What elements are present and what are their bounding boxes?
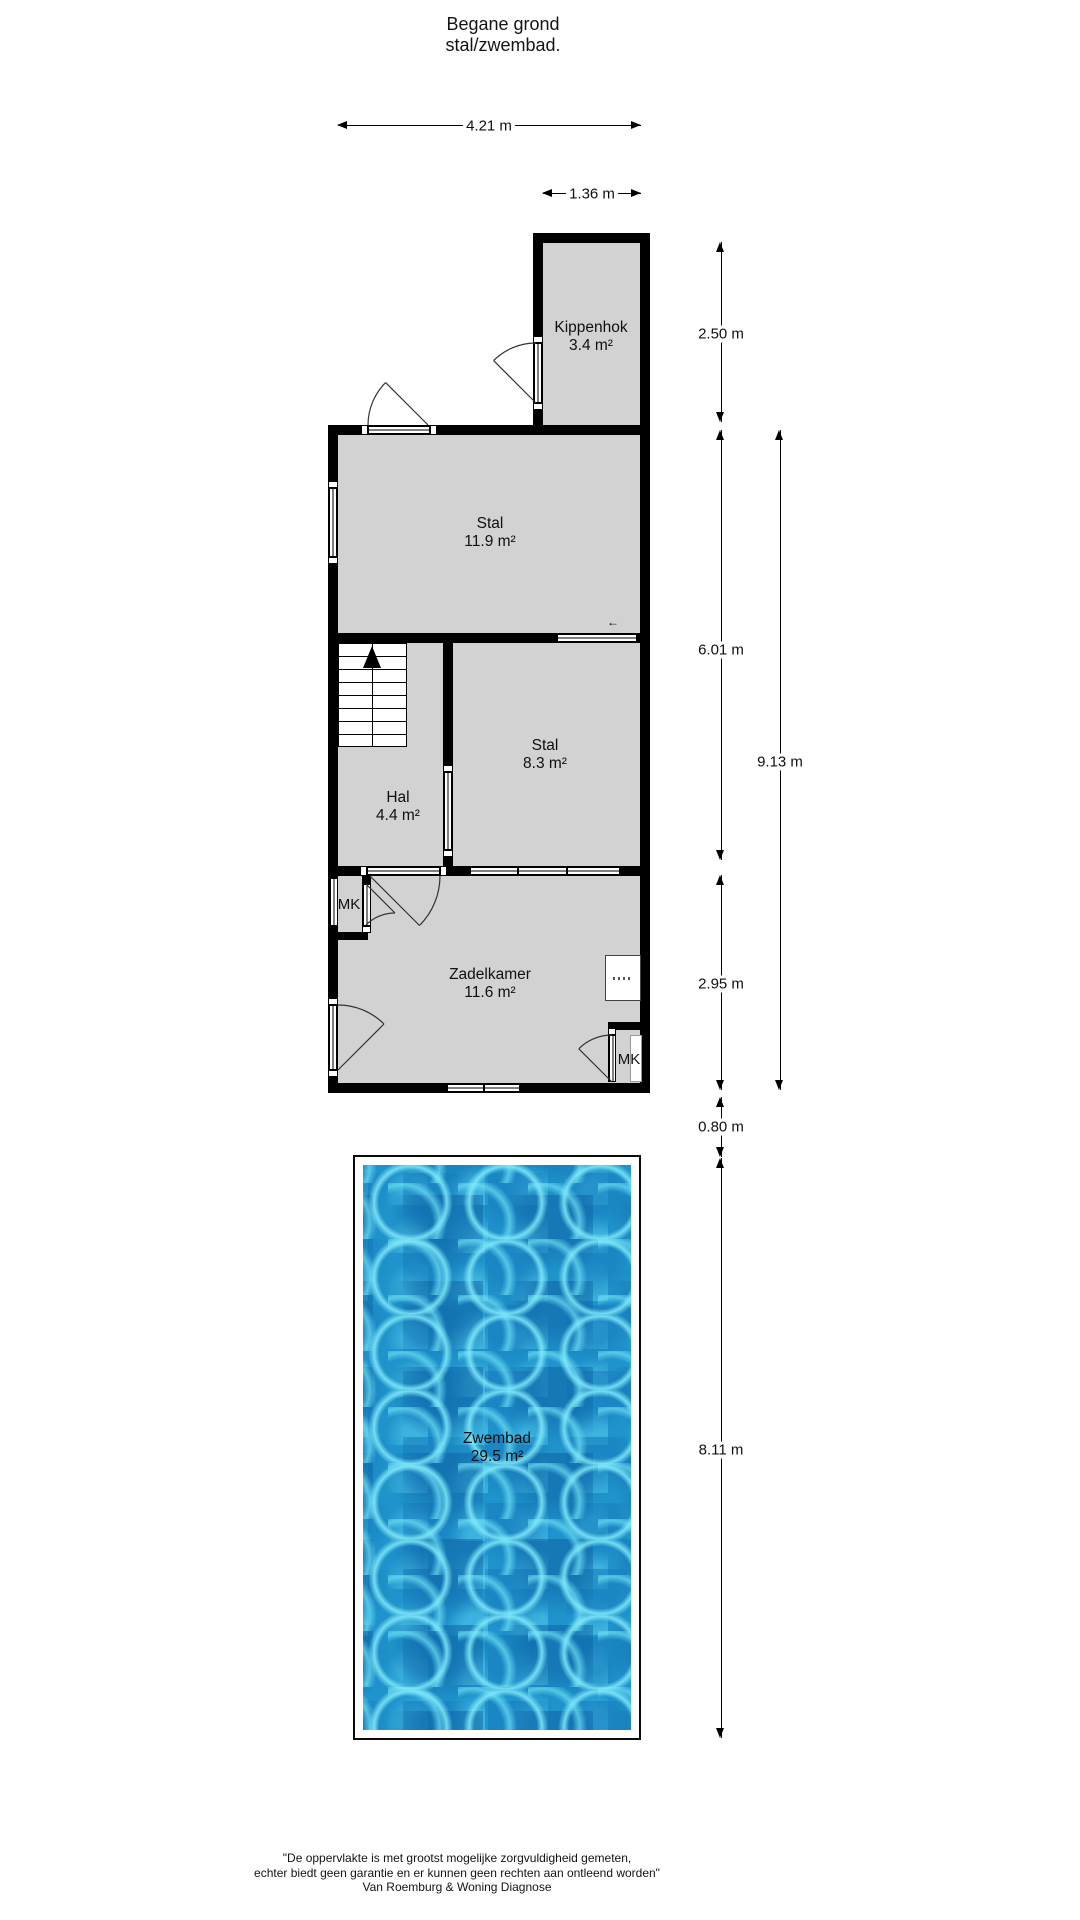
window-divider: [483, 1083, 485, 1093]
window-jamb: [328, 481, 338, 488]
dimension-label-kippenhok-width: 1.36 m: [566, 186, 618, 203]
arrowhead-right-icon: [631, 189, 641, 197]
room-area: 8.3 m²: [523, 755, 567, 773]
room-label-zwembad: Zwembad 29.5 m²: [463, 1430, 531, 1466]
arrowhead-up-icon: [716, 1158, 724, 1168]
arrowhead-up-icon: [716, 242, 724, 252]
door-jamb: [361, 425, 368, 435]
arrowhead-down-icon: [775, 1080, 783, 1090]
disclaimer-line-2: echter biedt geen garantie en er kunnen …: [254, 1866, 660, 1881]
dimension-label-stal-section: 6.01 m: [695, 642, 747, 659]
room-label-zadelkamer: Zadelkamer 11.6 m²: [449, 966, 531, 1002]
door-opening: [368, 425, 430, 435]
door-jamb: [533, 403, 543, 410]
arrowhead-up-icon: [716, 430, 724, 440]
door-opening: [367, 866, 440, 876]
stairs: [338, 643, 407, 747]
boiler-unit: [605, 955, 641, 1001]
window-divider: [566, 866, 568, 876]
arrowhead-left-icon: [337, 121, 347, 129]
arrowhead-down-icon: [716, 1147, 724, 1157]
arrowhead-right-icon: [631, 121, 641, 129]
window-jamb: [328, 557, 338, 564]
arrowhead-down-icon: [716, 412, 724, 422]
dimension-label-kippenhok-height: 2.50 m: [695, 326, 747, 343]
room-label-stal-large: Stal 11.9 m²: [464, 515, 515, 551]
window-jamb: [443, 850, 453, 857]
closet-label-mk-bottom: MK: [618, 1051, 641, 1069]
door-opening: [533, 343, 543, 403]
floorplan-page: Begane grond stal/zwembad. 4.21 m 1.36 m…: [0, 0, 1080, 1920]
window-symbol: [470, 866, 620, 876]
disclaimer-line-1: "De oppervlakte is met grootst mogelijke…: [254, 1851, 660, 1866]
room-name: Stal: [464, 515, 515, 533]
arrowhead-up-icon: [775, 430, 783, 440]
door-jamb: [328, 998, 338, 1005]
boiler-vents-icon: [613, 977, 633, 980]
room-area: 4.4 m²: [376, 807, 420, 825]
arrowhead-up-icon: [716, 875, 724, 885]
wall-tick: [451, 826, 453, 836]
door-arc: [368, 383, 428, 425]
room-name: Hal: [376, 789, 420, 807]
room-label-hal: Hal 4.4 m²: [376, 789, 420, 825]
door-jamb: [360, 866, 367, 876]
room-label-kippenhok: Kippenhok 3.4 m²: [554, 319, 627, 355]
room-name: Kippenhok: [554, 319, 627, 337]
arrowhead-down-icon: [716, 1080, 724, 1090]
window-jamb: [443, 765, 453, 772]
dimension-label-pool-height: 8.11 m: [696, 1442, 747, 1459]
room-area: 11.6 m²: [449, 984, 531, 1002]
wall: [640, 233, 650, 435]
arrowhead-up-icon: [716, 1097, 724, 1107]
window-symbol: [329, 878, 338, 926]
room-label-stal-small: Stal 8.3 m²: [523, 737, 567, 773]
door-jamb: [533, 336, 543, 343]
room-name: Zwembad: [463, 1430, 531, 1448]
dimension-label-zadelkamer-height: 2.95 m: [695, 976, 747, 993]
room-name: Stal: [523, 737, 567, 755]
dimension-label-building-height: 9.13 m: [754, 754, 806, 771]
wall: [533, 233, 650, 243]
window-divider: [517, 866, 519, 876]
dimension-label-total-width: 4.21 m: [463, 118, 515, 135]
door-jamb: [608, 1028, 616, 1035]
title-line-2: stal/zwembad.: [445, 35, 560, 56]
door-jamb: [440, 866, 447, 876]
wall: [328, 932, 368, 940]
door-opening: [328, 1005, 338, 1070]
arrowhead-down-icon: [716, 1728, 724, 1738]
door-opening: [608, 1035, 616, 1082]
arrowhead-left-icon: [542, 189, 552, 197]
wall: [430, 425, 650, 435]
window-symbol: [443, 772, 453, 850]
window-symbol: [557, 633, 637, 643]
arrowhead-down-icon: [716, 850, 724, 860]
disclaimer-line-3: Van Roemburg & Woning Diagnose: [254, 1880, 660, 1895]
window-symbol: [328, 488, 338, 557]
room-area: 11.9 m²: [464, 533, 515, 551]
door-opening: [362, 884, 371, 926]
room-name: Zadelkamer: [449, 966, 531, 984]
page-title: Begane grond stal/zwembad.: [445, 14, 560, 56]
closet-label-mk-top: MK: [338, 896, 361, 914]
dimension-label-gap: 0.80 m: [695, 1119, 747, 1136]
door-jamb: [328, 1070, 338, 1077]
room-area: 29.5 m²: [463, 1448, 531, 1466]
door-arc: [494, 343, 536, 403]
wall: [640, 425, 650, 1093]
wall: [533, 233, 543, 343]
door-jamb: [362, 926, 371, 933]
room-area: 3.4 m²: [554, 337, 627, 355]
disclaimer: "De oppervlakte is met grootst mogelijke…: [254, 1851, 660, 1895]
title-line-1: Begane grond: [445, 14, 560, 35]
door-jamb: [430, 425, 437, 435]
stairs-up-arrow-icon: [363, 646, 381, 668]
small-arrow-icon: ←: [607, 616, 619, 628]
